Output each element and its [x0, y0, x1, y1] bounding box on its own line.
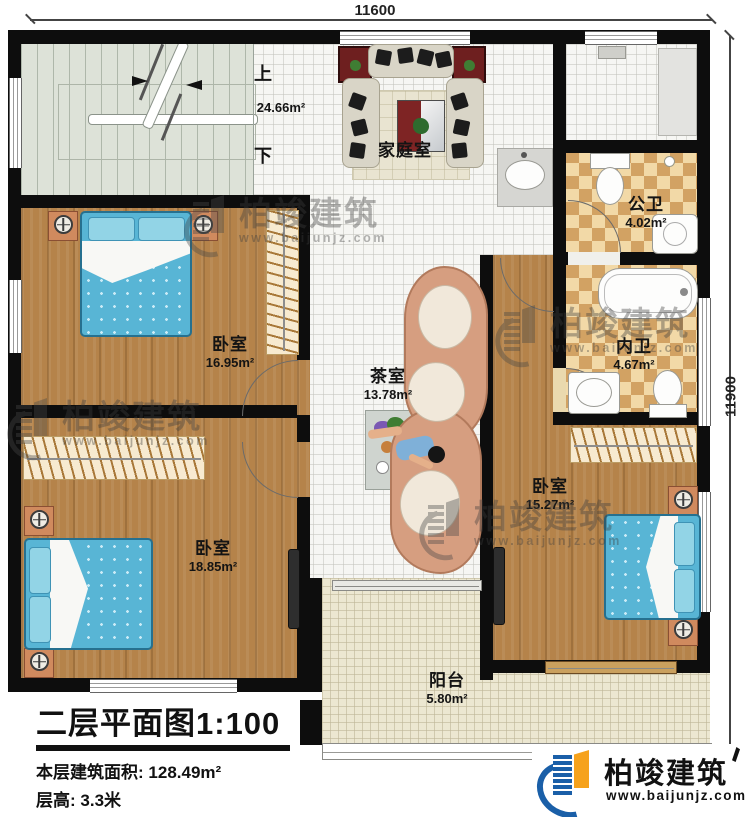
wardrobe — [23, 436, 205, 480]
window-bedroom-nw — [9, 280, 22, 353]
sofa-cushion — [397, 47, 414, 64]
window-stairs — [9, 78, 22, 168]
lamp-icon — [194, 215, 213, 234]
door-gap-bedroom-nw — [297, 360, 310, 415]
floor-height-label: 层高: — [36, 791, 76, 810]
floor-plan: 上 下 24.66m² 家庭室 公卫 4.02m² 内卫 4.67m² 卧室 1… — [0, 0, 750, 817]
logo-block: 柏竣建筑 www.baijunjz.com — [532, 744, 748, 814]
lamp-icon — [30, 652, 49, 671]
bathroom-sink — [576, 378, 612, 407]
faucet-icon — [680, 288, 688, 296]
wall-public-bath-top — [566, 140, 697, 153]
family-room-label: 家庭室 — [345, 140, 465, 161]
stair-up-label: 上 — [254, 60, 272, 86]
wall-shelf — [598, 46, 626, 59]
floor-drain-icon — [664, 156, 675, 167]
person-head — [428, 446, 445, 463]
floor-area-label: 本层建筑面积: — [36, 763, 144, 782]
company-website: www.baijunjz.com — [606, 788, 747, 803]
lamp-icon — [674, 490, 693, 509]
family-room-area: 24.66m² — [236, 100, 326, 116]
pillow — [138, 217, 185, 241]
wall-balcony-stub — [300, 700, 322, 745]
tv — [494, 548, 504, 624]
pillow — [88, 217, 135, 241]
stair-direction-arrow-icon — [132, 76, 148, 86]
floor-area-line: 本层建筑面积: 128.49m² — [36, 758, 221, 783]
plan-title-text: 二层平面图 — [36, 706, 196, 741]
bed — [24, 538, 153, 650]
inner-bath-label: 内卫 — [586, 336, 682, 357]
wall-balcony-left — [310, 578, 322, 692]
plan-scale: 1:100 — [196, 706, 280, 741]
company-name: 柏竣建筑 — [604, 750, 728, 792]
lamp-icon — [674, 620, 693, 639]
bedroom-se-label: 卧室 — [502, 476, 598, 497]
dimension-right: 11900 — [723, 376, 740, 418]
nightstand — [24, 648, 54, 678]
toilet-bowl — [653, 370, 682, 408]
chaise-cushion — [418, 285, 472, 349]
dimension-top: 11600 — [0, 2, 750, 19]
stair-direction-arrow-icon — [186, 80, 202, 90]
tea-room-label: 茶室 — [338, 366, 438, 387]
cup-icon — [376, 461, 389, 474]
public-bath-label: 公卫 — [598, 194, 694, 215]
floor-height-line: 层高: 3.3米 — [36, 786, 121, 811]
wall-stair-bedroom — [8, 195, 310, 208]
nightstand — [668, 616, 698, 646]
sofa-cushion — [375, 49, 392, 66]
door-gap-public-bath — [568, 252, 620, 265]
plant-icon — [350, 60, 361, 71]
logo-tick-mark — [732, 747, 740, 762]
sliding-door-bedroom-balcony — [545, 661, 677, 674]
vanity-sink — [505, 160, 545, 190]
balcony-area: 5.80m² — [392, 691, 502, 707]
nightstand — [48, 211, 78, 241]
stair-down-label: 下 — [254, 142, 272, 168]
sliding-door-tea-balcony — [332, 580, 482, 591]
tea-room-area: 13.78m² — [338, 387, 438, 403]
balcony-label: 阳台 — [392, 670, 502, 691]
window-inner-bath — [698, 298, 711, 426]
tv — [289, 550, 299, 628]
nightstand — [188, 211, 218, 241]
door-gap-bedroom-sw — [297, 442, 310, 497]
floor-height-value: 3.3米 — [80, 791, 121, 810]
toilet-tank — [649, 404, 687, 418]
door-gap-inner-bath — [553, 368, 566, 412]
pillow — [29, 547, 51, 594]
bathtub-inner — [604, 274, 692, 313]
plant-icon — [413, 118, 429, 134]
window-top-right — [585, 31, 657, 45]
bedroom-sw-label: 卧室 — [158, 538, 268, 559]
company-name-text: 柏竣建筑 — [604, 758, 728, 790]
plant-icon — [464, 60, 475, 71]
floor-area-value: 128.49m² — [148, 763, 221, 782]
window-bedroom-sw — [90, 679, 237, 693]
sofa-cushion — [435, 51, 453, 69]
company-logo-icon — [536, 749, 598, 809]
pillow — [674, 522, 695, 566]
dimension-top-line — [30, 19, 712, 21]
bedroom-se-area: 15.27m² — [502, 497, 598, 513]
bathtub — [598, 268, 698, 319]
window-top-center — [340, 31, 470, 45]
inner-bath-area: 4.67m² — [586, 357, 682, 373]
bed-blanket — [82, 540, 151, 648]
bedroom-nw-label: 卧室 — [178, 334, 282, 355]
bed — [80, 211, 192, 337]
pillow — [674, 569, 695, 613]
pillow — [29, 596, 51, 643]
utility-cabinet — [658, 48, 697, 136]
lamp-icon — [30, 510, 49, 529]
bedroom-nw-area: 16.95m² — [178, 355, 282, 371]
plan-title: 二层平面图1:100 — [36, 698, 280, 743]
sofa-cushion — [453, 119, 471, 137]
lamp-icon — [54, 215, 73, 234]
nightstand — [24, 506, 54, 536]
bed — [604, 514, 701, 620]
bedroom-sw-area: 18.85m² — [158, 559, 268, 575]
wardrobe — [570, 427, 697, 463]
wall-public-bath-left — [553, 44, 566, 265]
public-bath-area: 4.02m² — [598, 215, 694, 231]
nightstand — [668, 486, 698, 516]
title-underline — [36, 745, 290, 751]
faucet-icon — [521, 152, 527, 158]
